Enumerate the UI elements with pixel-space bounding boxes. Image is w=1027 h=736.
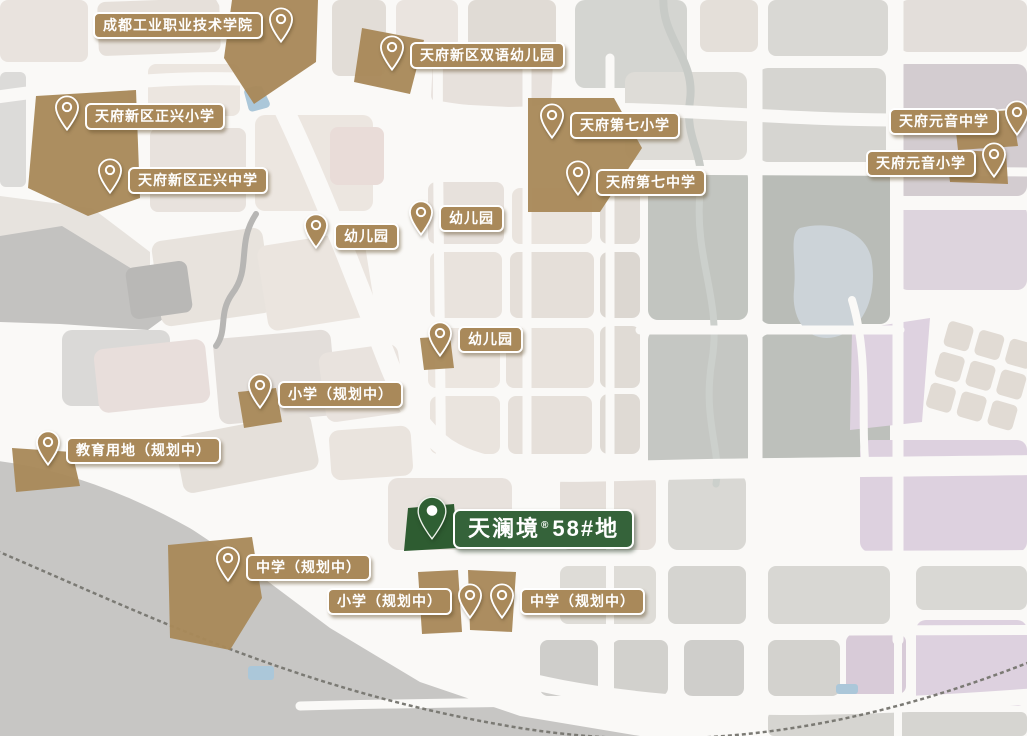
marker-education-land-planned[interactable]: 教育用地（规划中）	[36, 430, 221, 466]
marker-kindergarten-2[interactable]: 幼儿园	[409, 200, 504, 236]
project-label: 天澜境®58#地	[453, 509, 634, 549]
marker-zhengxing-primary[interactable]: 天府新区正兴小学	[55, 95, 225, 131]
marker-label: 幼儿园	[334, 223, 399, 250]
map-pin-icon	[304, 213, 328, 249]
map-pin-icon	[409, 200, 433, 236]
marker-label: 天府第七小学	[570, 112, 680, 139]
project-name: 天澜境	[468, 516, 540, 541]
map-pin-icon	[540, 103, 564, 139]
marker-label: 小学（规划中）	[327, 588, 452, 615]
marker-label: 天府第七中学	[596, 169, 706, 196]
marker-seventh-primary[interactable]: 天府第七小学	[540, 103, 680, 139]
map-pin-icon	[55, 95, 79, 131]
map-pin-icon	[216, 546, 240, 582]
map-pin-icon	[458, 583, 482, 619]
marker-label: 中学（规划中）	[520, 588, 645, 615]
map-pin-icon	[428, 321, 452, 357]
map-pin-icon	[566, 160, 590, 196]
map-pin-icon	[1005, 100, 1027, 136]
marker-label: 幼儿园	[458, 326, 523, 353]
marker-kindergarten-1[interactable]: 幼儿园	[304, 213, 399, 250]
map-pin-icon	[982, 142, 1006, 178]
education-map: 成都工业职业技术学院 天府新区双语幼儿园 天府新区正兴小学 天府新区正兴中学 天…	[0, 0, 1027, 736]
marker-project-site[interactable]: 天澜境®58#地	[417, 496, 634, 549]
map-pin-icon	[36, 430, 60, 466]
marker-label: 教育用地（规划中）	[66, 437, 221, 464]
project-pin-icon	[417, 496, 447, 540]
marker-seventh-middle[interactable]: 天府第七中学	[566, 160, 706, 196]
marker-label: 天府元音小学	[866, 150, 976, 177]
marker-college[interactable]: 成都工业职业技术学院	[93, 7, 293, 43]
marker-label: 幼儿园	[439, 205, 504, 232]
marker-yuanyin-middle[interactable]: 天府元音中学	[889, 100, 1027, 136]
marker-zhengxing-middle[interactable]: 天府新区正兴中学	[98, 158, 268, 194]
registered-mark: ®	[541, 520, 550, 531]
marker-label: 天府元音中学	[889, 108, 999, 135]
map-pin-icon	[248, 373, 272, 409]
marker-label: 天府新区双语幼儿园	[410, 42, 565, 69]
map-pin-icon	[269, 7, 293, 43]
map-pin-icon	[380, 35, 404, 71]
marker-bilingual-kindergarten[interactable]: 天府新区双语幼儿园	[380, 35, 565, 71]
marker-middle-planned-2[interactable]: 中学（规划中）	[490, 583, 645, 619]
marker-primary-planned-2[interactable]: 小学（规划中）	[327, 583, 482, 619]
pond	[836, 684, 858, 694]
marker-label: 天府新区正兴小学	[85, 103, 225, 130]
marker-label: 成都工业职业技术学院	[93, 12, 263, 39]
marker-yuanyin-primary[interactable]: 天府元音小学	[866, 142, 1006, 178]
pond	[248, 666, 274, 680]
marker-label: 小学（规划中）	[278, 381, 403, 408]
marker-label: 天府新区正兴中学	[128, 167, 268, 194]
marker-primary-planned-1[interactable]: 小学（规划中）	[248, 373, 403, 409]
map-pin-icon	[490, 583, 514, 619]
marker-kindergarten-3[interactable]: 幼儿园	[428, 321, 523, 357]
map-pin-icon	[98, 158, 122, 194]
marker-middle-planned-1[interactable]: 中学（规划中）	[216, 546, 371, 582]
project-plot: 58#地	[552, 516, 619, 541]
marker-label: 中学（规划中）	[246, 554, 371, 581]
